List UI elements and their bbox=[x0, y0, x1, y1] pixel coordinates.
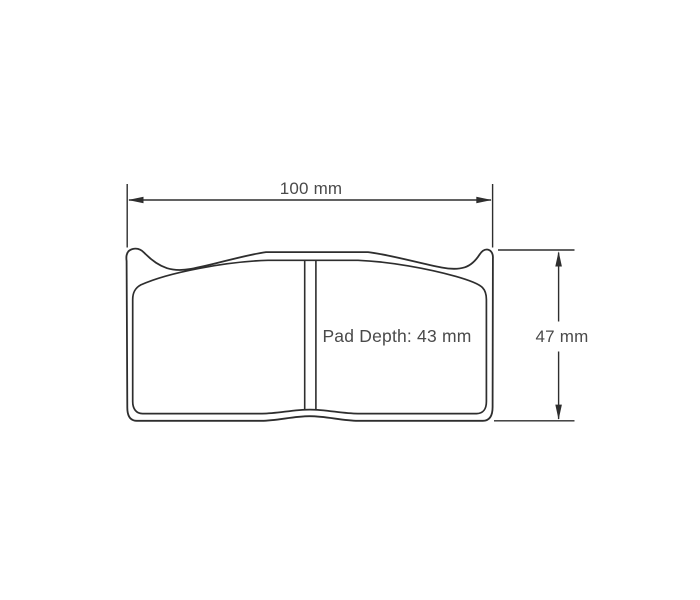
brake-pad-dimension-diagram: 100 mm 47 mm Pad Depth: 43 mm bbox=[0, 0, 700, 600]
diagram-canvas: 100 mm 47 mm Pad Depth: 43 mm bbox=[0, 0, 700, 600]
width-arrow-left-icon bbox=[128, 197, 144, 204]
arrowheads-group bbox=[128, 197, 562, 420]
labels-group: 100 mm 47 mm Pad Depth: 43 mm bbox=[280, 179, 589, 346]
dimension-lines-group bbox=[127, 184, 574, 421]
width-dimension-label: 100 mm bbox=[280, 179, 343, 198]
height-arrow-down-icon bbox=[555, 405, 562, 420]
pad-depth-label: Pad Depth: 43 mm bbox=[322, 326, 471, 346]
height-dimension-label: 47 mm bbox=[536, 327, 589, 346]
height-arrow-up-icon bbox=[555, 251, 562, 266]
width-arrow-right-icon bbox=[476, 197, 492, 204]
